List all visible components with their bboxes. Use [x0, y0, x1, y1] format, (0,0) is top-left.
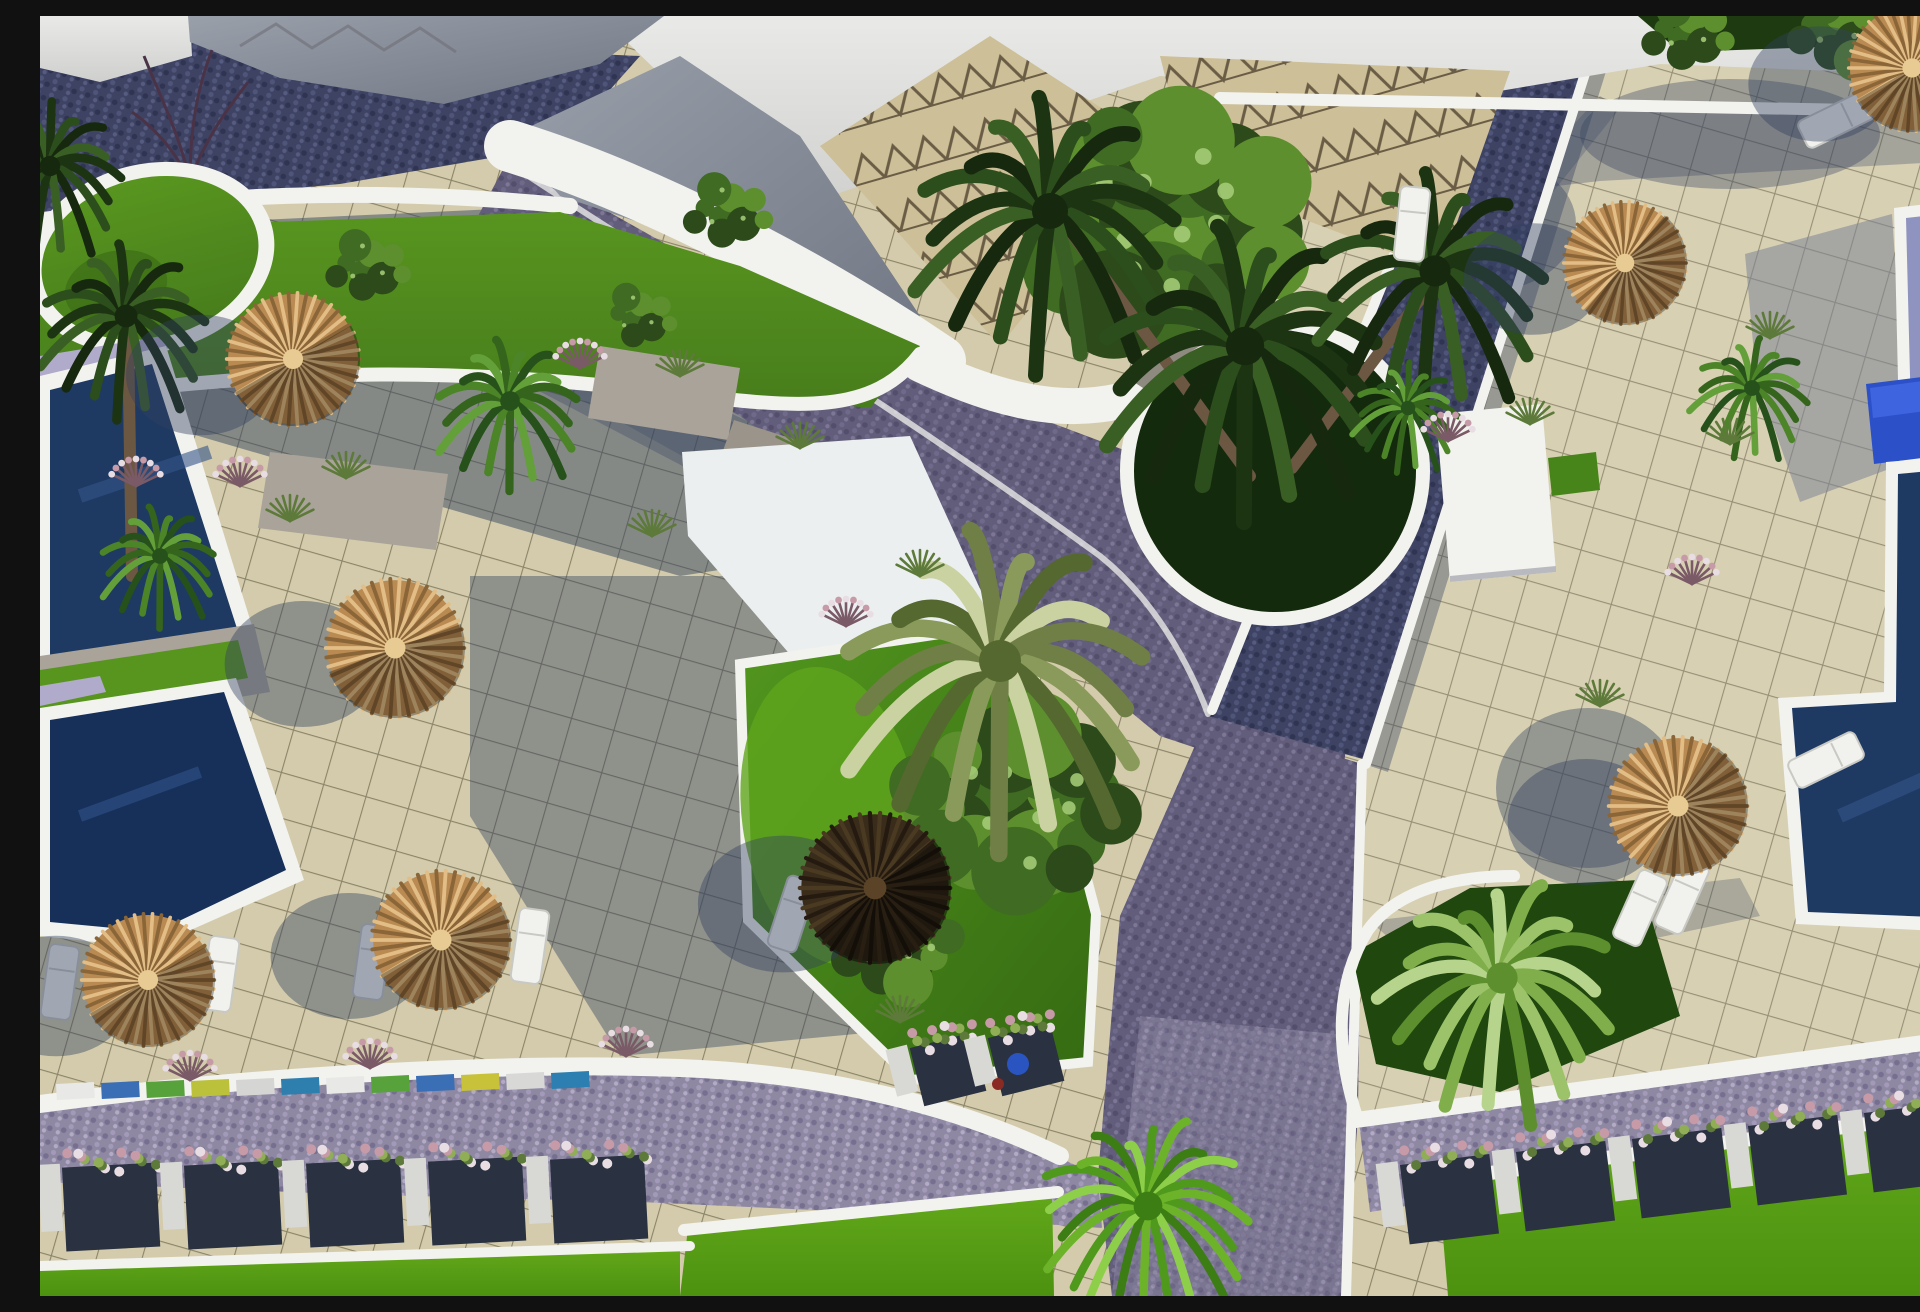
- palm-crown: [979, 640, 1021, 682]
- tuft-flower: [187, 1050, 194, 1057]
- bush-glint: [709, 219, 714, 224]
- tuft-flower: [1668, 563, 1675, 570]
- aerial-resort-rendering: [40, 16, 1920, 1296]
- palm-frond: [509, 401, 510, 491]
- tuft-flower: [850, 597, 857, 604]
- palm-crown: [1401, 401, 1415, 415]
- tuft-flower: [863, 605, 870, 612]
- tuft-flower: [244, 457, 251, 464]
- tuft-flower: [374, 1039, 381, 1046]
- palm-crown: [1419, 255, 1450, 286]
- tuft-flower: [201, 1054, 208, 1061]
- tuft-flower: [342, 1053, 349, 1060]
- box-body: [550, 1155, 648, 1244]
- tuft-flower: [562, 342, 569, 349]
- tuft-flower: [1689, 554, 1696, 561]
- color-tile: [416, 1074, 455, 1092]
- color-tile: [191, 1079, 230, 1097]
- palm-crown: [1134, 1192, 1163, 1221]
- bush-glint: [1701, 37, 1706, 42]
- tuft-flower: [1681, 555, 1688, 562]
- tuft-flower: [257, 465, 264, 472]
- tuft-flower: [251, 460, 258, 467]
- bush-blob: [1046, 845, 1094, 893]
- bush-blob: [651, 296, 671, 316]
- tuft-flower: [615, 1027, 622, 1034]
- tuft-flower: [1430, 415, 1437, 422]
- tuft-flower: [569, 339, 576, 346]
- tuft-flower: [1674, 558, 1681, 565]
- palm-crown: [500, 391, 520, 411]
- color-tile: [101, 1081, 140, 1099]
- bush-blob: [393, 266, 411, 284]
- tuft-flower: [352, 1042, 359, 1049]
- tuft-flower: [598, 1041, 605, 1048]
- color-tile: [461, 1073, 500, 1091]
- tuft-flower: [1459, 415, 1466, 422]
- tuft-flower: [166, 1059, 173, 1066]
- tuft-flower: [647, 1041, 654, 1048]
- tuft-flower: [1703, 558, 1710, 565]
- sun-lounger: [1393, 186, 1431, 263]
- box-body: [184, 1161, 282, 1250]
- umbrella-hub: [385, 638, 406, 659]
- color-tile: [371, 1075, 410, 1093]
- tuft-flower: [828, 600, 835, 607]
- tuft-flower: [818, 611, 825, 618]
- umbrella-hub: [1616, 254, 1635, 273]
- box-body: [62, 1163, 160, 1252]
- tuft-flower: [637, 1030, 644, 1037]
- bush-glint: [1669, 40, 1674, 45]
- bush-glint: [649, 320, 653, 324]
- tuft-flower: [623, 1026, 630, 1033]
- tuft-flower: [133, 456, 140, 463]
- bush-glint: [1062, 801, 1076, 815]
- tuft-flower: [216, 465, 223, 472]
- color-tile: [551, 1071, 590, 1089]
- tuft-flower: [153, 465, 160, 472]
- tuft-flower: [112, 465, 119, 472]
- bush-glint: [927, 944, 935, 952]
- bush-blob: [662, 316, 677, 331]
- bush-blob: [742, 188, 766, 212]
- tuft-flower: [1452, 412, 1459, 419]
- color-tile: [506, 1072, 545, 1090]
- palm-frond: [1752, 388, 1755, 453]
- tuft-flower: [237, 456, 244, 463]
- bush-blob: [325, 265, 348, 288]
- bush-glint: [360, 244, 365, 249]
- bush-glint: [622, 323, 626, 327]
- palm-frond: [999, 661, 1000, 853]
- tuft-flower: [591, 342, 598, 349]
- bush-blob: [683, 210, 707, 234]
- tuft-flower: [608, 1030, 615, 1037]
- bush-blob: [339, 229, 371, 261]
- umbrella-hub: [864, 877, 887, 900]
- tuft-flower: [1420, 426, 1427, 433]
- palm-crown: [1226, 327, 1264, 365]
- umbrella-hub: [431, 930, 452, 951]
- palm-crown: [40, 156, 60, 176]
- tuft-flower: [843, 596, 850, 603]
- bush-glint: [1070, 773, 1084, 787]
- tuft-flower: [381, 1042, 388, 1049]
- bush-blob: [697, 172, 731, 206]
- tuft-flower: [212, 471, 219, 478]
- tuft-flower: [1709, 563, 1716, 570]
- palm-crown: [1486, 962, 1517, 993]
- tuft-flower: [857, 600, 864, 607]
- tuft-flower: [1424, 420, 1431, 427]
- tuft-flower: [1437, 412, 1444, 419]
- bush-blob: [612, 283, 640, 311]
- bush-blob: [381, 244, 404, 267]
- tuft-flower: [261, 471, 268, 478]
- tuft-flower: [207, 1059, 214, 1066]
- scene-canvas: [40, 16, 1920, 1296]
- tuft-flower: [140, 457, 147, 464]
- tuft-flower: [211, 1065, 218, 1072]
- box-body: [306, 1159, 404, 1248]
- tuft-flower: [157, 471, 164, 478]
- garden-pot: [1007, 1053, 1029, 1075]
- small-green-patch: [1548, 452, 1600, 496]
- umbrella-hub: [1668, 796, 1689, 817]
- garden-pot: [992, 1078, 1004, 1090]
- tuft-flower: [822, 605, 829, 612]
- tuft-flower: [1445, 411, 1452, 418]
- palm-crown: [152, 548, 168, 564]
- palm-crown: [1032, 193, 1068, 229]
- bush-blob: [1641, 31, 1666, 56]
- tuft-flower: [584, 339, 591, 346]
- color-tile: [56, 1082, 95, 1100]
- color-tile: [236, 1078, 275, 1096]
- bush-blob: [755, 211, 774, 230]
- bush-blob: [1716, 32, 1735, 51]
- bush-glint: [1174, 226, 1191, 243]
- tuft-flower: [359, 1039, 366, 1046]
- color-tile: [146, 1080, 185, 1098]
- tuft-flower: [1469, 426, 1476, 433]
- tuft-flower: [1713, 569, 1720, 576]
- bush-glint: [1023, 856, 1037, 870]
- palm-crown: [115, 305, 138, 328]
- tuft-flower: [835, 597, 842, 604]
- tuft-flower: [1465, 420, 1472, 427]
- box-pillar: [40, 1164, 63, 1232]
- tuft-flower: [630, 1027, 637, 1034]
- bush-glint: [350, 274, 355, 279]
- palm-frond: [1244, 346, 1245, 522]
- bush-glint: [380, 270, 385, 275]
- bush-blob: [1219, 136, 1312, 229]
- bush-glint: [1195, 148, 1212, 165]
- tuft-flower: [1696, 555, 1703, 562]
- lounger-body: [1393, 186, 1431, 263]
- color-tile: [281, 1077, 320, 1095]
- box-pillar: [160, 1162, 185, 1230]
- tuft-flower: [194, 1051, 201, 1058]
- bush-glint: [719, 187, 724, 192]
- tuft-flower: [367, 1038, 374, 1045]
- tuft-flower: [597, 347, 604, 354]
- tuft-flower: [1664, 569, 1671, 576]
- bush-glint: [1217, 183, 1234, 200]
- umbrella-hub: [283, 349, 303, 369]
- bush-glint: [740, 216, 745, 221]
- color-tile: [326, 1076, 365, 1094]
- tuft-flower: [147, 460, 154, 467]
- tuft-flower: [125, 457, 132, 464]
- tuft-flower: [179, 1051, 186, 1058]
- tuft-flower: [867, 611, 874, 618]
- bush-glint: [631, 295, 635, 299]
- box-body: [428, 1157, 526, 1246]
- tuft-flower: [391, 1053, 398, 1060]
- tuft-flower: [577, 338, 584, 345]
- box-pillar: [282, 1160, 307, 1228]
- tuft-flower: [118, 460, 125, 467]
- tuft-flower: [172, 1054, 179, 1061]
- tuft-flower: [229, 457, 236, 464]
- palm-crown: [1744, 380, 1760, 396]
- tuft-flower: [387, 1047, 394, 1054]
- tuft-flower: [602, 1035, 609, 1042]
- tuft-flower: [643, 1035, 650, 1042]
- tuft-flower: [162, 1065, 169, 1072]
- tuft-flower: [222, 460, 229, 467]
- tuft-flower: [346, 1047, 353, 1054]
- umbrella-hub: [138, 970, 158, 990]
- tuft-flower: [556, 347, 563, 354]
- tuft-flower: [552, 353, 559, 360]
- tuft-flower: [601, 353, 608, 360]
- bush-blob: [883, 957, 933, 1007]
- box-pillar: [404, 1158, 429, 1226]
- box-pillar: [526, 1156, 551, 1224]
- tuft-flower: [108, 471, 115, 478]
